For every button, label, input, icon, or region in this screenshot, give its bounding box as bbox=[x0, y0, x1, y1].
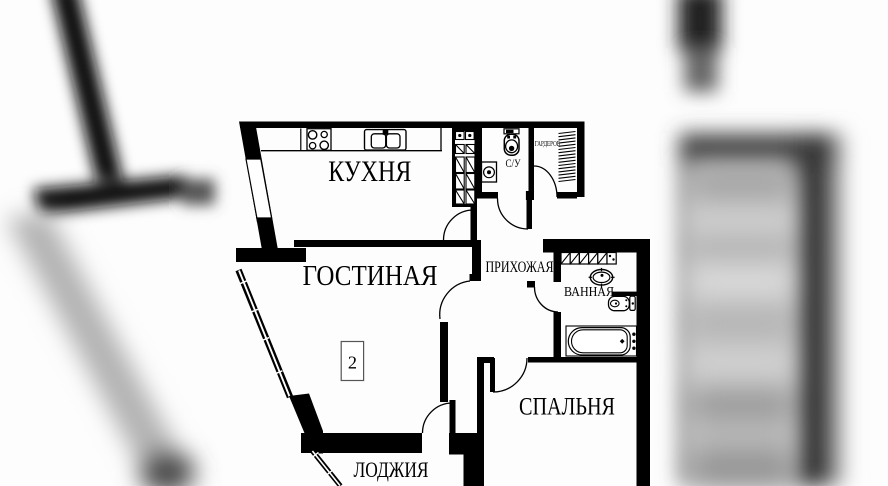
svg-text:ПРИХОЖАЯ: ПРИХОЖАЯ bbox=[486, 259, 554, 276]
svg-text:2: 2 bbox=[348, 353, 357, 373]
svg-text:СПАЛЬНЯ: СПАЛЬНЯ bbox=[519, 392, 615, 421]
svg-text:С/У: С/У bbox=[506, 157, 522, 170]
svg-text:ВАННАЯ: ВАННАЯ bbox=[564, 284, 614, 299]
svg-text:ГОСТИНАЯ: ГОСТИНАЯ bbox=[303, 260, 438, 292]
svg-text:КУХНЯ: КУХНЯ bbox=[328, 155, 411, 188]
svg-text:ГАРДЕРОБ: ГАРДЕРОБ bbox=[535, 139, 560, 148]
svg-text:ЛОДЖИЯ: ЛОДЖИЯ bbox=[354, 457, 429, 482]
